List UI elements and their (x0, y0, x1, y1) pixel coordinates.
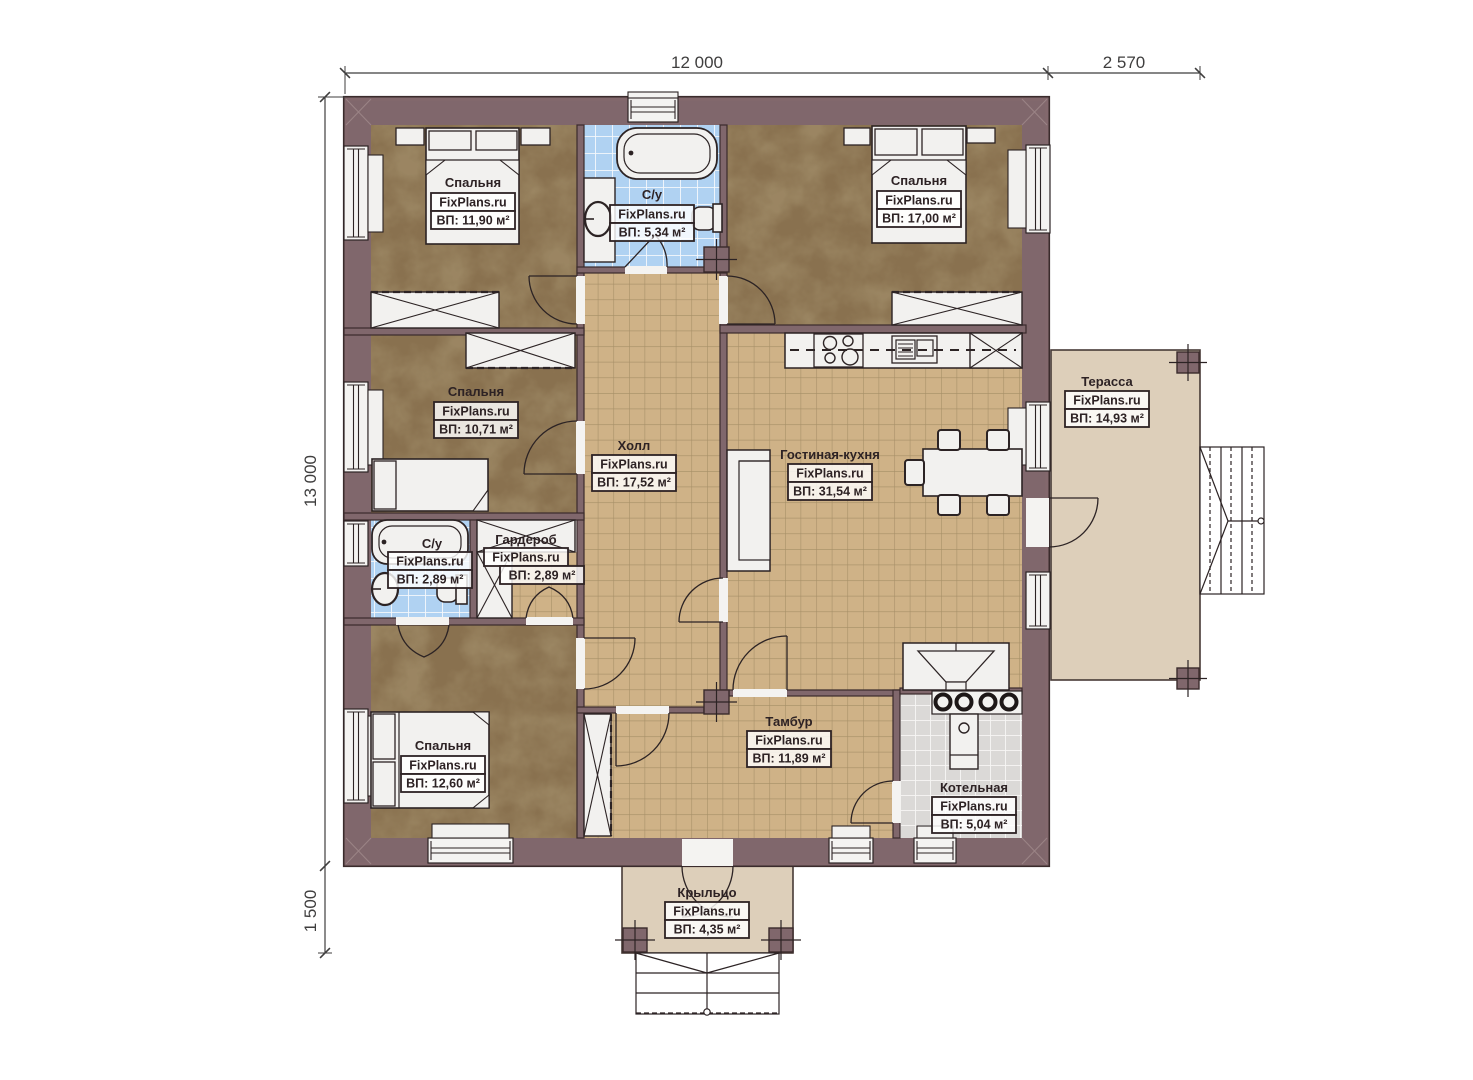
svg-text:ВП: 11,89 м²: ВП: 11,89 м² (752, 752, 825, 766)
svg-text:ВП: 11,90 м²: ВП: 11,90 м² (436, 214, 509, 228)
svg-text:FixPlans.ru: FixPlans.ru (442, 405, 509, 419)
svg-text:FixPlans.ru: FixPlans.ru (492, 551, 559, 565)
svg-text:Гардероб: Гардероб (495, 532, 556, 547)
svg-text:С/у: С/у (422, 536, 443, 551)
svg-text:FixPlans.ru: FixPlans.ru (600, 458, 667, 472)
svg-text:FixPlans.ru: FixPlans.ru (755, 734, 822, 748)
svg-text:ВП: 17,52 м²: ВП: 17,52 м² (597, 476, 671, 490)
svg-text:FixPlans.ru: FixPlans.ru (439, 196, 506, 210)
svg-text:12 000: 12 000 (671, 53, 723, 72)
svg-text:ВП: 17,00 м²: ВП: 17,00 м² (882, 212, 956, 226)
svg-text:ВП: 31,54 м²: ВП: 31,54 м² (793, 485, 867, 499)
svg-text:ВП: 4,35 м²: ВП: 4,35 м² (674, 923, 741, 937)
svg-text:ВП: 12,60 м²: ВП: 12,60 м² (406, 777, 480, 791)
svg-text:Котельная: Котельная (940, 780, 1008, 795)
svg-text:FixPlans.ru: FixPlans.ru (396, 555, 463, 569)
svg-text:FixPlans.ru: FixPlans.ru (618, 208, 685, 222)
svg-text:Крыльцо: Крыльцо (677, 885, 736, 900)
svg-text:Гостиная-кухня: Гостиная-кухня (780, 447, 880, 462)
svg-text:Тамбур: Тамбур (765, 714, 812, 729)
svg-text:ВП: 2,89 м²: ВП: 2,89 м² (397, 573, 464, 587)
svg-text:Спальня: Спальня (891, 173, 947, 188)
svg-text:Спальня: Спальня (415, 738, 471, 753)
svg-text:Спальня: Спальня (445, 175, 501, 190)
svg-text:1 500: 1 500 (301, 890, 320, 933)
svg-text:ВП: 5,34 м²: ВП: 5,34 м² (619, 226, 686, 240)
svg-text:ВП: 5,04 м²: ВП: 5,04 м² (941, 818, 1008, 832)
svg-text:ВП: 10,71 м²: ВП: 10,71 м² (439, 423, 513, 437)
svg-text:Спальня: Спальня (448, 384, 504, 399)
svg-text:FixPlans.ru: FixPlans.ru (796, 467, 863, 481)
svg-text:FixPlans.ru: FixPlans.ru (885, 194, 952, 208)
svg-text:13 000: 13 000 (301, 455, 320, 507)
svg-text:FixPlans.ru: FixPlans.ru (940, 800, 1007, 814)
svg-text:FixPlans.ru: FixPlans.ru (673, 905, 740, 919)
svg-text:Холл: Холл (618, 438, 651, 453)
svg-text:FixPlans.ru: FixPlans.ru (409, 759, 476, 773)
svg-text:ВП: 2,89 м²: ВП: 2,89 м² (509, 569, 576, 583)
svg-text:С/у: С/у (642, 187, 663, 202)
svg-text:2 570: 2 570 (1103, 53, 1146, 72)
svg-text:FixPlans.ru: FixPlans.ru (1073, 394, 1140, 408)
svg-text:Терасса: Терасса (1081, 374, 1133, 389)
svg-text:ВП: 14,93 м²: ВП: 14,93 м² (1070, 412, 1144, 426)
